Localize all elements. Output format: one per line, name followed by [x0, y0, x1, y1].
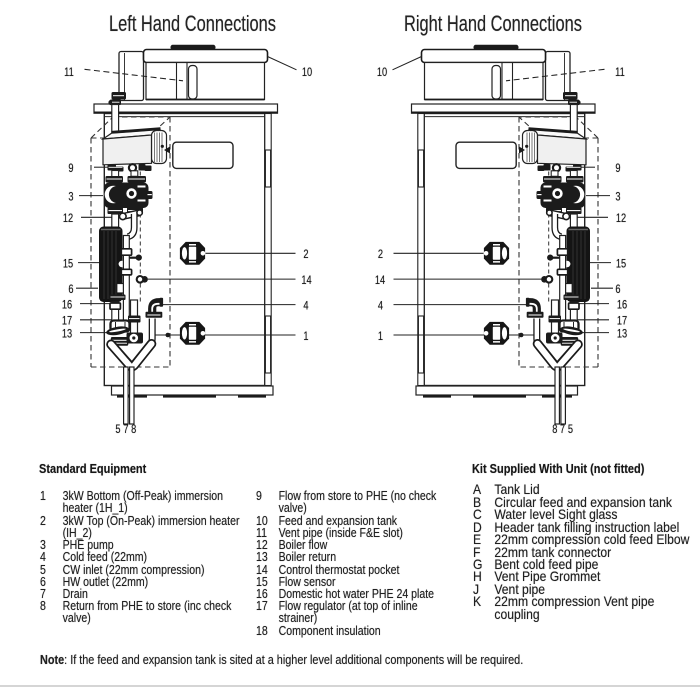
svg-text:8: 8	[552, 423, 557, 437]
svg-text:17: 17	[62, 314, 72, 328]
svg-text:17: 17	[617, 314, 627, 328]
svg-text:9: 9	[615, 162, 620, 176]
svg-text:12: 12	[616, 212, 626, 226]
svg-text:2: 2	[303, 248, 308, 262]
svg-text:14: 14	[375, 274, 385, 288]
svg-text:5: 5	[568, 423, 573, 437]
svg-text:3: 3	[615, 190, 620, 204]
svg-text:1: 1	[303, 330, 308, 344]
svg-text:13: 13	[617, 327, 627, 341]
svg-text:2: 2	[378, 248, 383, 262]
svg-text:9: 9	[68, 162, 73, 176]
svg-text:1: 1	[378, 330, 383, 344]
svg-text:5: 5	[115, 423, 120, 437]
svg-text:16: 16	[62, 298, 72, 312]
svg-text:14: 14	[301, 274, 311, 288]
svg-text:4: 4	[378, 299, 383, 313]
svg-text:15: 15	[616, 257, 626, 271]
svg-text:10: 10	[377, 66, 387, 80]
svg-text:8: 8	[131, 423, 136, 437]
svg-text:11: 11	[615, 66, 625, 80]
svg-text:13: 13	[62, 327, 72, 341]
svg-text:3: 3	[68, 190, 73, 204]
svg-text:6: 6	[68, 283, 73, 297]
svg-text:12: 12	[63, 212, 73, 226]
svg-text:15: 15	[63, 257, 73, 271]
svg-text:6: 6	[615, 283, 620, 297]
svg-text:4: 4	[303, 299, 308, 313]
svg-text:10: 10	[302, 66, 312, 80]
svg-text:7: 7	[123, 423, 128, 437]
svg-text:7: 7	[560, 423, 565, 437]
svg-text:11: 11	[64, 66, 74, 80]
svg-text:16: 16	[617, 298, 627, 312]
